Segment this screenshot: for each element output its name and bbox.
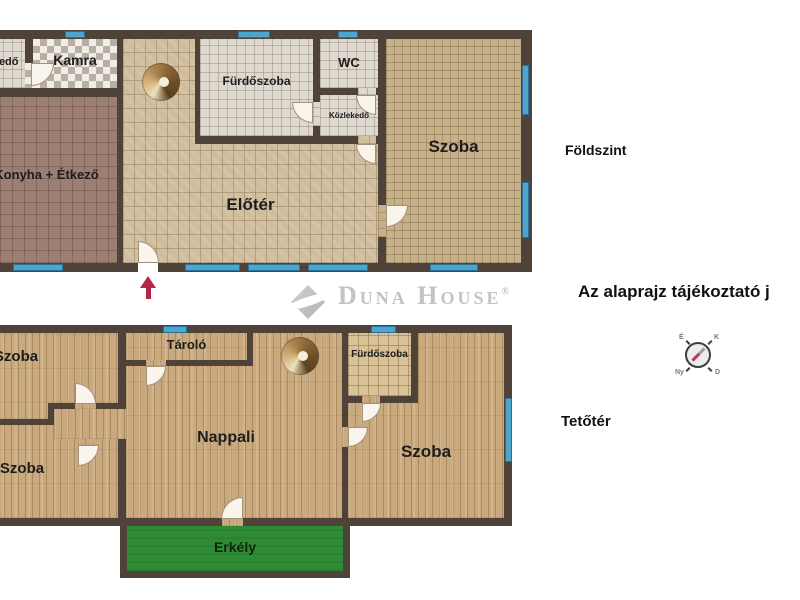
brand-diamond-icon xyxy=(291,285,325,319)
window xyxy=(163,326,187,333)
room-label-konyha: Konyha + Étkező xyxy=(0,168,117,182)
window xyxy=(13,264,63,271)
room-label-szoba-gf: Szoba xyxy=(386,138,521,156)
door-opening xyxy=(362,396,380,403)
room-label-szoba-bl: Szoba xyxy=(0,461,52,477)
spiral-staircase-icon xyxy=(142,63,180,101)
room-label-szoba-tl: Szoba xyxy=(0,349,46,365)
compass-icon: É K Ny D xyxy=(679,336,719,376)
wall xyxy=(166,360,253,366)
door-opening xyxy=(313,102,320,126)
window xyxy=(522,65,529,115)
spiral-staircase-icon xyxy=(281,337,319,375)
wall xyxy=(126,360,146,366)
compass-letter-east: K xyxy=(714,334,719,341)
vestibule-floor xyxy=(54,409,126,439)
room-label-eloter: Előtér xyxy=(123,196,378,214)
room-label-furdoszoba-gf: Fürdőszoba xyxy=(200,75,313,88)
room-szoba-tl-floor xyxy=(0,333,118,403)
window xyxy=(338,31,358,38)
door-opening xyxy=(358,88,376,95)
brand-registered-mark: ® xyxy=(502,286,509,297)
window xyxy=(308,264,368,271)
window xyxy=(65,31,85,38)
door-opening xyxy=(358,136,376,144)
entrance-opening xyxy=(138,263,158,272)
compass-letter-south: D xyxy=(715,369,720,376)
room-label-furdoszoba-attic: Fürdőszoba xyxy=(347,350,412,361)
brand-name-text: Duna House xyxy=(338,281,502,310)
room-furdoszoba-attic-floor xyxy=(348,333,411,396)
floor-plan-image: Közlekedő Kamra Konyha + Étkező Előtér F… xyxy=(0,0,800,600)
ground-floor-title: Földszint xyxy=(565,142,626,158)
window xyxy=(238,31,270,38)
room-label-nappali: Nappali xyxy=(126,430,326,447)
window xyxy=(430,264,478,271)
room-szoba-tl-floor-ext xyxy=(0,403,48,419)
wall xyxy=(247,333,253,360)
attic-title: Tetőtér xyxy=(561,413,611,430)
window xyxy=(371,326,396,333)
door-opening xyxy=(378,205,386,237)
brand-name: Duna House® xyxy=(338,281,509,311)
compass-letter-north: É xyxy=(679,334,684,341)
disclaimer-text: Az alaprajz tájékoztató j xyxy=(578,282,770,302)
window xyxy=(522,182,529,238)
compass-letter-west: Ny xyxy=(675,369,684,376)
window xyxy=(505,398,512,462)
room-label-tarolo: Tároló xyxy=(126,338,247,352)
room-label-wc: WC xyxy=(320,56,378,70)
room-label-kozlekedo: Közlekedő xyxy=(320,112,378,120)
entrance-arrow-icon xyxy=(140,276,156,300)
window xyxy=(185,264,240,271)
door-opening xyxy=(222,518,243,526)
room-label-erkely: Erkély xyxy=(127,540,343,555)
room-label-kozlekedo-edge: Közlekedő xyxy=(0,57,22,69)
room-label-kamra: Kamra xyxy=(33,53,117,68)
room-label-szoba-right: Szoba xyxy=(348,443,504,461)
window xyxy=(248,264,300,271)
